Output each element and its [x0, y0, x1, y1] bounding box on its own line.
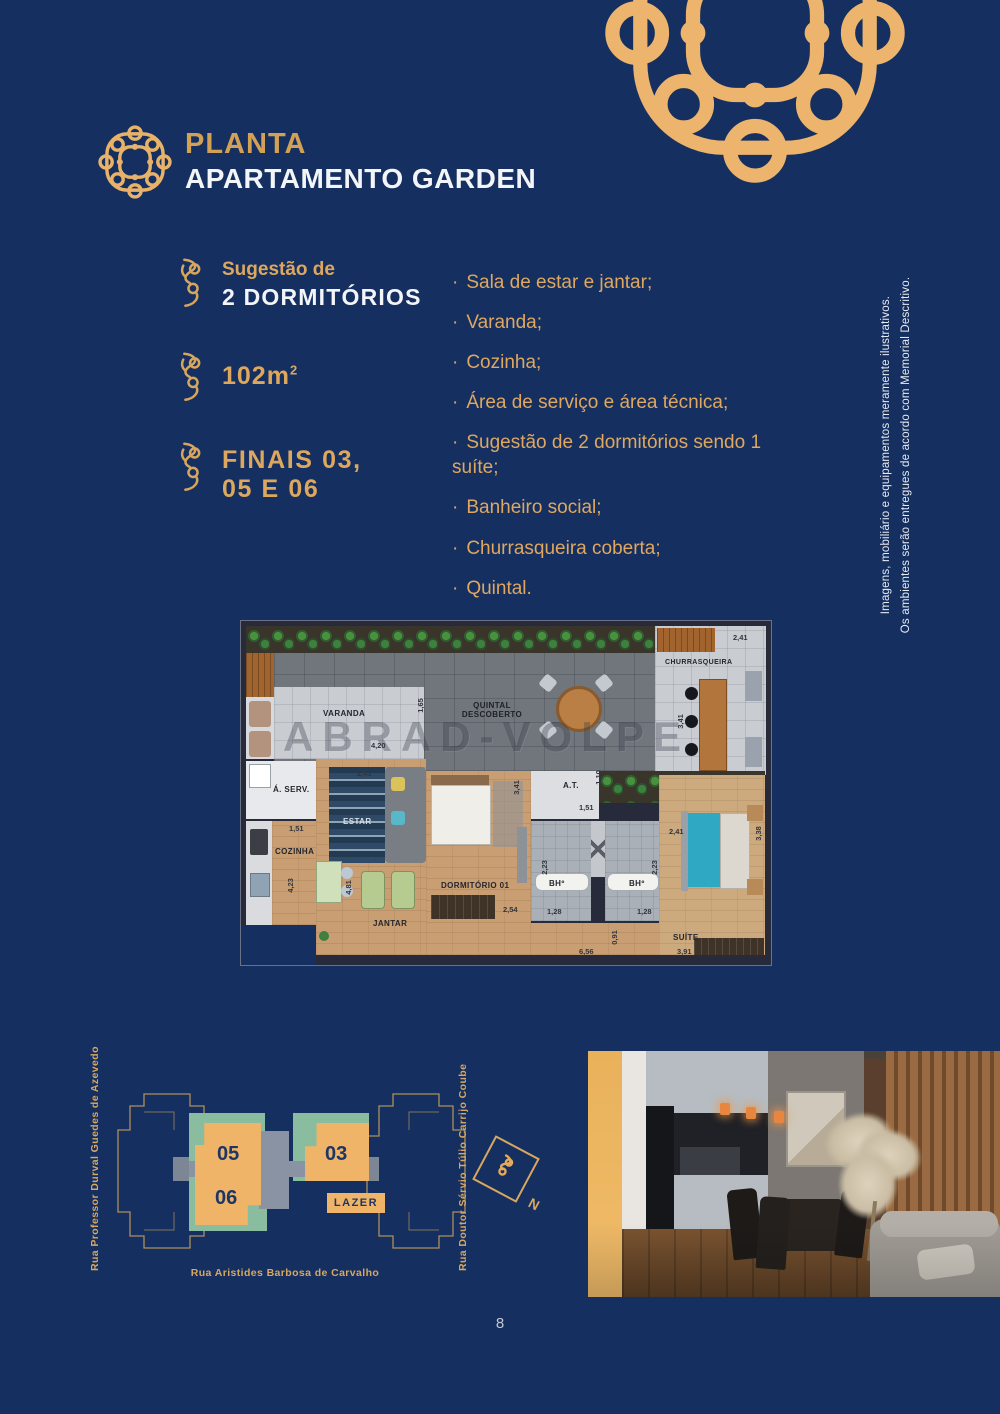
- dim: 4,81: [344, 880, 353, 895]
- sofa-cushion: [249, 731, 271, 757]
- photo-shade: [588, 1051, 1000, 1297]
- decorative-ornament-large: [600, 0, 910, 200]
- bar-table: [699, 679, 727, 771]
- feature-text: Cozinha;: [466, 352, 541, 373]
- sofa-cushion: [249, 701, 271, 727]
- unit-05-label: 05: [217, 1143, 239, 1166]
- dim: 1,51: [579, 803, 594, 812]
- planter: [246, 653, 274, 697]
- site-core: [259, 1131, 289, 1209]
- fp-room-cozinha: [272, 821, 316, 925]
- bed: [431, 785, 491, 845]
- bullet: ·: [452, 497, 458, 518]
- plan-notch: [241, 925, 316, 965]
- room-label-churrasqueira: CHURRASQUEIRA: [665, 659, 732, 666]
- disclaimer: Imagens, mobiliário e equipamentos meram…: [876, 265, 916, 645]
- feature-text: Área de serviço e área técnica;: [466, 392, 728, 413]
- bullet: ·: [452, 272, 458, 293]
- dim: 3,91: [677, 947, 692, 956]
- pillow: [391, 777, 405, 791]
- room-label-estar: ESTAR: [343, 817, 372, 826]
- dim: 4,23: [286, 878, 295, 893]
- list-item: ·Cozinha;: [452, 350, 782, 375]
- list-item: ·Banheiro social;: [452, 495, 782, 520]
- room-label-bh1: BHº: [549, 879, 565, 888]
- island-stool: [341, 867, 353, 879]
- suite-bed-cover: [688, 813, 720, 887]
- dim: 6,56: [579, 947, 594, 956]
- churrasqueira-counter: [657, 628, 715, 652]
- dim: 1,28: [547, 907, 562, 916]
- room-label-aserv: Á. SERV.: [273, 785, 310, 794]
- list-item: ·Varanda;: [452, 310, 782, 335]
- shaft: [591, 821, 605, 877]
- suite-bed: [720, 813, 750, 889]
- ornament-vine-icon: [180, 352, 206, 402]
- dim: 4,20: [371, 741, 386, 750]
- site-corridor-cap: [173, 1157, 189, 1181]
- spec-dorm-main: 2 DORMITÓRIOS: [222, 284, 422, 311]
- small-plant: [319, 931, 329, 941]
- dim: 2,23: [650, 860, 659, 875]
- kitchen-island: [316, 861, 342, 903]
- list-item: ·Churrasqueira coberta;: [452, 536, 782, 561]
- lazer-label: LAZER: [327, 1193, 385, 1213]
- sink: [250, 873, 270, 897]
- list-item: ·Quintal.: [452, 576, 782, 601]
- spec-finais-line1: FINAIS 03,: [222, 446, 362, 475]
- feature-text: Varanda;: [466, 312, 542, 333]
- spec-finais-line2: 05 E 06: [222, 475, 319, 504]
- disclaimer-line1: Imagens, mobiliário e equipamentos meram…: [876, 265, 896, 645]
- feature-text: Sala de estar e jantar;: [466, 272, 652, 293]
- spec-area: 102m2: [222, 362, 298, 391]
- ornament-vine-icon: [180, 258, 206, 308]
- room-label-jantar: JANTAR: [373, 919, 407, 928]
- page-subtitle: APARTAMENTO GARDEN: [185, 163, 536, 195]
- dim: 1,65: [416, 698, 425, 713]
- bullet: ·: [452, 432, 458, 453]
- bed-headboard: [431, 775, 489, 785]
- dim: 1,28: [637, 907, 652, 916]
- dim: 2,41: [733, 633, 748, 642]
- ornament-vine-icon: [180, 442, 206, 492]
- dim: 1,10: [594, 770, 603, 785]
- room-label-at: A.T.: [563, 781, 579, 790]
- bullet: ·: [452, 578, 458, 599]
- siteplan: 05 03 06 LAZER Rua Professor Durval Gued…: [85, 1075, 485, 1290]
- feature-text: Churrasqueira coberta;: [466, 538, 660, 559]
- wardrobe: [431, 895, 495, 919]
- living-rug: [329, 767, 385, 863]
- street-bottom-label: Rua Aristides Barbosa de Carvalho: [165, 1267, 405, 1279]
- page-title: PLANTA: [185, 128, 306, 161]
- spec-area-value: 102m: [222, 362, 290, 390]
- dim: 2,41: [357, 769, 372, 778]
- feature-list: ·Sala de estar e jantar; ·Varanda; ·Cozi…: [452, 270, 782, 616]
- dim: 3,41: [512, 780, 521, 795]
- dim: 3,41: [676, 714, 685, 729]
- hedge-top: [246, 626, 655, 653]
- feature-text: Sugestão de 2 dormitórios sendo 1 suíte;: [452, 432, 761, 478]
- suite-wardrobe: [694, 938, 764, 955]
- disclaimer-line2: Os ambientes serão entregues de acordo c…: [896, 265, 916, 645]
- fp-hall: [426, 923, 659, 955]
- stove: [250, 829, 268, 855]
- nightstand: [747, 879, 763, 895]
- brochure-page: PLANTA APARTAMENTO GARDEN Sugestão: [0, 0, 1000, 1414]
- list-item: ·Sala de estar e jantar;: [452, 270, 782, 295]
- spec-dorm-pre: Sugestão de: [222, 259, 335, 281]
- dim: 2,41: [669, 827, 684, 836]
- counter-block: [745, 737, 762, 767]
- feature-text: Banheiro social;: [466, 497, 601, 518]
- dim: 2,54: [503, 905, 518, 914]
- unit-03-label: 03: [325, 1143, 347, 1166]
- dim: 3,38: [754, 826, 763, 841]
- washer: [249, 764, 271, 788]
- brand-ornament-icon: [97, 124, 173, 200]
- compass-north-label: N: [526, 1195, 542, 1214]
- bullet: ·: [452, 538, 458, 559]
- unit-06-label: 06: [215, 1187, 237, 1210]
- room-label-quintal: QUINTAL DESCOBERTO: [459, 701, 525, 719]
- desk: [517, 827, 527, 883]
- floorplan: ABRAD-VOLPE VARANDA 4,20 1,65 QUINTAL DE…: [240, 620, 772, 966]
- list-item: ·Área de serviço e área técnica;: [452, 390, 782, 415]
- bullet: ·: [452, 312, 458, 333]
- interior-photo: [588, 1051, 1000, 1297]
- spec-area-sup: 2: [290, 363, 298, 378]
- list-item: ·Sugestão de 2 dormitórios sendo 1 suíte…: [452, 430, 782, 480]
- watermark: ABRAD-VOLPE: [283, 713, 690, 761]
- dim: 2,23: [540, 860, 549, 875]
- page-number: 8: [0, 1315, 1000, 1332]
- bullet: ·: [452, 392, 458, 413]
- pillow: [391, 811, 405, 825]
- nightstand: [747, 805, 763, 821]
- room-label-varanda: VARANDA: [323, 709, 365, 718]
- dining-chair: [391, 871, 415, 909]
- ornament-chain-icon: [600, 0, 910, 188]
- suite-headboard: [681, 811, 688, 891]
- dining-chair: [361, 871, 385, 909]
- room-label-bh2: BHº: [629, 879, 645, 888]
- dim: 1,51: [289, 824, 304, 833]
- room-label-suite: SUÍTE: [673, 933, 699, 942]
- bar-stool: [685, 687, 698, 700]
- room-label-dorm1: DORMITÓRIO 01: [441, 881, 509, 890]
- compass: N: [465, 1130, 555, 1230]
- dim: 0,91: [610, 930, 619, 945]
- bullet: ·: [452, 352, 458, 373]
- counter-block: [745, 671, 762, 701]
- feature-text: Quintal.: [466, 578, 531, 599]
- street-left-label: Rua Professor Durval Guedes de Azevedo: [89, 1081, 101, 1271]
- room-label-cozinha: COZINHA: [275, 847, 314, 856]
